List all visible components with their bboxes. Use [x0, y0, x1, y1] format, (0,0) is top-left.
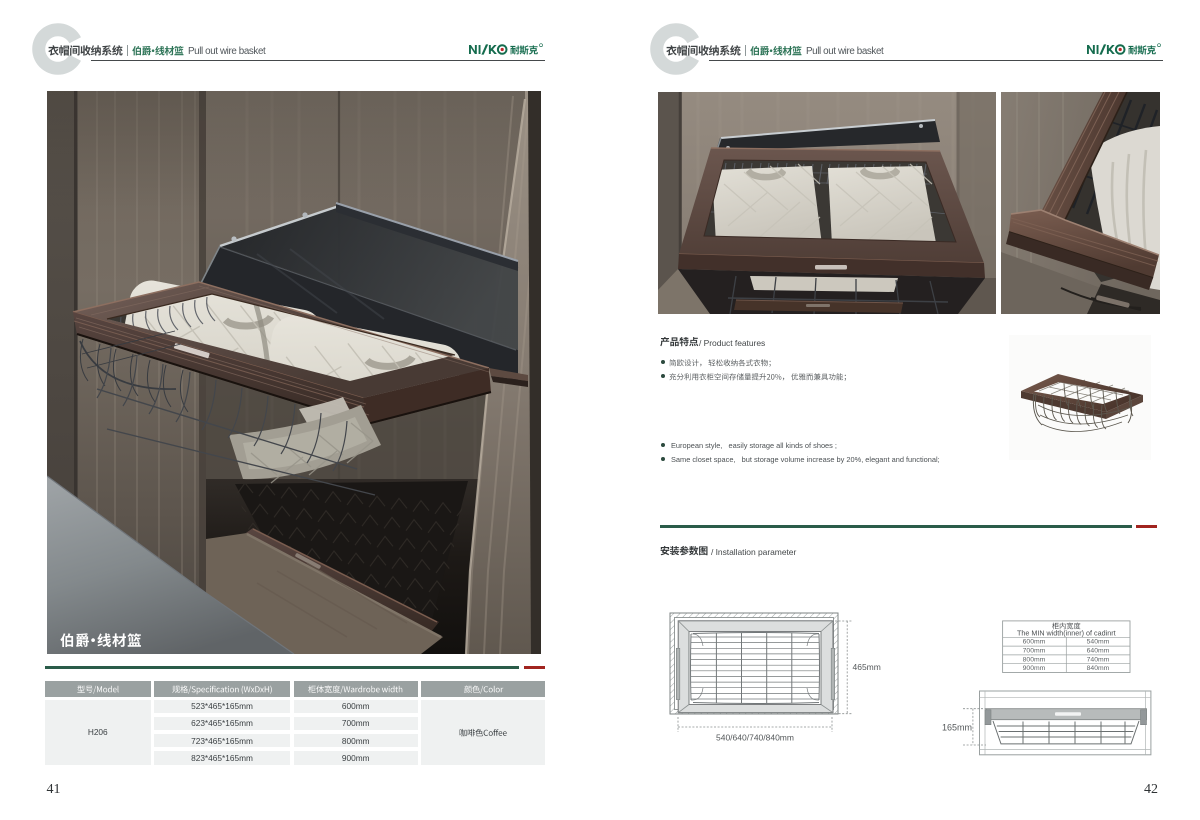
svg-text:840mm: 840mm: [1087, 665, 1110, 672]
svg-text:900mm: 900mm: [1023, 665, 1046, 672]
svg-text:740mm: 740mm: [1087, 656, 1110, 663]
svg-text:165mm: 165mm: [942, 723, 972, 733]
svg-text:640mm: 640mm: [1087, 648, 1110, 655]
svg-text:The MIN width(inner) of cadinr: The MIN width(inner) of cadinrt: [1017, 629, 1116, 638]
svg-text:600mm: 600mm: [1023, 639, 1046, 646]
svg-text:800mm: 800mm: [1023, 656, 1046, 663]
svg-text:465mm: 465mm: [853, 662, 881, 672]
svg-text:700mm: 700mm: [1023, 648, 1046, 655]
svg-text:540mm: 540mm: [1087, 639, 1110, 646]
svg-text:540/640/740/840mm: 540/640/740/840mm: [716, 733, 794, 743]
